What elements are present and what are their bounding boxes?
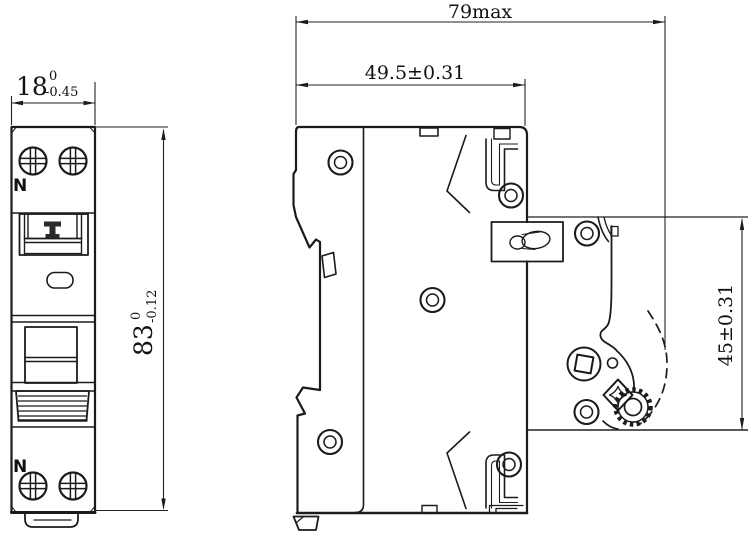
gear-hub: [625, 399, 642, 416]
mounting-foot: [25, 513, 78, 527]
dimension-height: 83 0 -0.12: [95, 127, 168, 511]
pin-circle: [608, 358, 618, 368]
dim-overall-width-value: 79max: [448, 1, 513, 23]
dim-height-tol-upper: 0: [129, 312, 144, 320]
inner-edge-line: [355, 128, 364, 513]
rivet-icon: [318, 430, 342, 454]
top-tab: [420, 128, 438, 136]
dim-width-tol-upper: 0: [49, 69, 57, 84]
rivet-icon: [575, 222, 599, 246]
rivet-icon: [497, 453, 521, 477]
lever-travel-arc: [640, 311, 667, 424]
dim-rail-height-value: 45±0.31: [715, 284, 737, 366]
square-axle-icon: [568, 348, 601, 381]
dimension-width: 18 0 -0.45: [12, 69, 96, 125]
dim-depth-value: 49.5±0.31: [365, 62, 466, 84]
handle-grip: [12, 383, 96, 421]
clip-window: [492, 222, 564, 262]
rivet-icon: [421, 288, 445, 312]
rivet-icon: [575, 400, 599, 424]
clip-lever-tab: [598, 217, 618, 242]
front-view: N N: [12, 69, 169, 527]
dim-width-tol-lower: -0.45: [45, 85, 78, 100]
dimension-rail-height: 45±0.31: [715, 218, 744, 430]
screw-head-icon: [60, 148, 87, 175]
operating-handle: [25, 327, 77, 383]
indicator-window: [47, 273, 73, 289]
dim-height-tol-lower: -0.12: [145, 290, 160, 323]
neutral-label-bottom: N: [13, 457, 27, 477]
screw-head-icon: [60, 473, 87, 500]
front-face-tab: [322, 253, 336, 278]
rivet-icon: [499, 184, 523, 208]
screw-head-icon: [20, 148, 47, 175]
neutral-label-top: N: [13, 176, 27, 196]
clip-cam-icon: [510, 230, 551, 251]
toggle-latch-icon: [44, 222, 61, 239]
technical-drawing-page: N N: [0, 0, 750, 533]
dimension-depth: 49.5±0.31: [296, 62, 525, 126]
side-view: 79max 49.5±0.31 45±0.31: [294, 1, 749, 530]
dimension-overall-width: 79max: [296, 1, 665, 350]
rail-foot: [294, 517, 319, 531]
rivet-icon: [329, 151, 353, 175]
toggle-recess: [20, 214, 89, 255]
terminal-recess-top: [447, 136, 518, 213]
dim-width-value: 18: [16, 72, 48, 101]
corner-step: [494, 129, 510, 140]
dim-height-value: 83: [129, 324, 158, 356]
circuit-breaker-dimension-drawing: N N: [0, 0, 750, 533]
